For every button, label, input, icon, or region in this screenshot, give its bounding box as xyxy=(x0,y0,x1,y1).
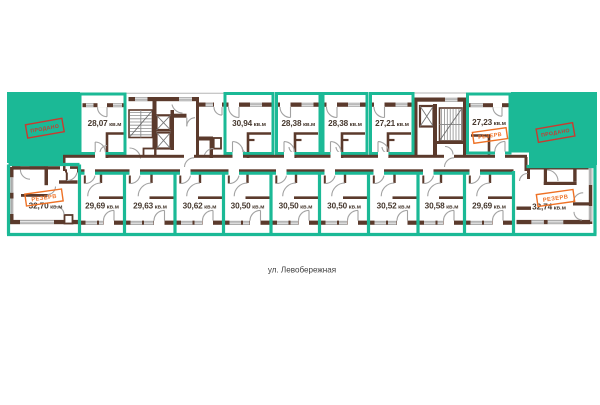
svg-text:ул. Левобережная: ул. Левобережная xyxy=(268,266,336,275)
